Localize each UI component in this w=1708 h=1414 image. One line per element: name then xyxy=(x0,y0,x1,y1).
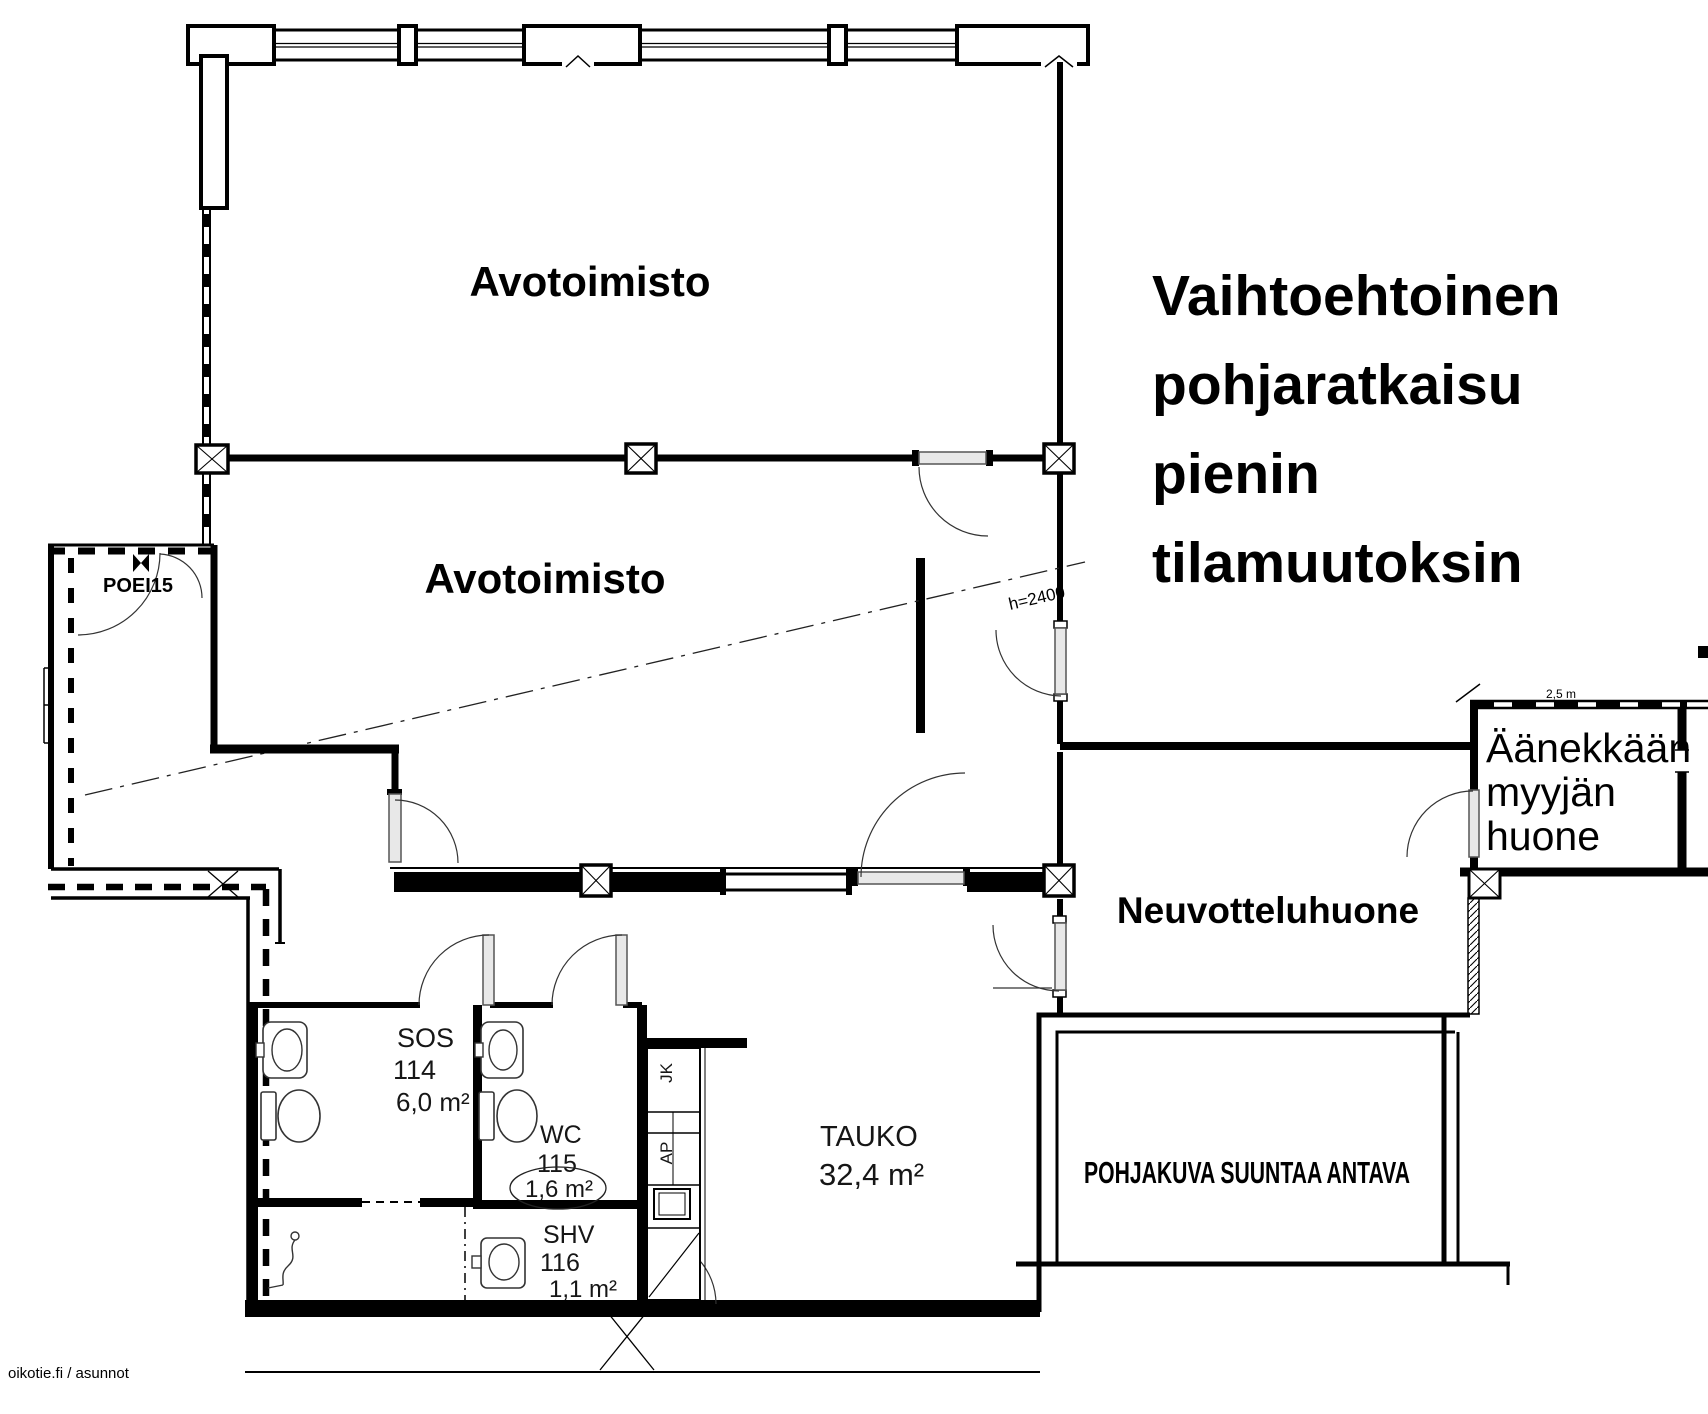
sos-name: SOS xyxy=(397,1023,454,1053)
room-label-open-office-lower: Avotoimisto xyxy=(424,555,665,602)
pillar-xbox xyxy=(1044,865,1074,896)
wc-name: WC xyxy=(540,1121,582,1149)
dimension-annotation: 2,5 m xyxy=(1546,687,1576,701)
pillar-xbox xyxy=(1469,869,1500,898)
pillar-xbox xyxy=(581,865,611,896)
title-line-1: Vaihtoehtoinen xyxy=(1152,264,1561,328)
door-leaf xyxy=(483,935,494,1005)
room-label-break-room: TAUKO 32,4 m² xyxy=(819,1121,924,1192)
pillar-xbox xyxy=(1044,444,1074,473)
kitchenette xyxy=(647,1048,705,1302)
door-leaf xyxy=(616,935,627,1005)
door-leaf xyxy=(1055,628,1066,694)
sos-area: 6,0 m² xyxy=(396,1087,470,1117)
shv-number: 116 xyxy=(540,1249,580,1277)
hatched-wall xyxy=(1468,898,1479,1014)
door-leaf xyxy=(1469,790,1479,857)
room-label-open-office-upper: Avotoimisto xyxy=(469,258,710,305)
disclaimer-text: POHJAKUVA SUUNTAA ANTAVA xyxy=(1084,1155,1410,1190)
pillar-xbox xyxy=(626,444,656,473)
title-line-2: pohjaratkaisu xyxy=(1152,353,1523,417)
wc-area: 1,6 m² xyxy=(525,1176,593,1203)
fire-door-code: POEI15 xyxy=(103,575,173,597)
shv-area: 1,1 m² xyxy=(549,1276,617,1303)
wc-sink-icon xyxy=(475,1022,523,1078)
pillar xyxy=(399,26,416,64)
door-leaf xyxy=(389,794,401,862)
door-leaf xyxy=(858,872,964,884)
sos-toilet-icon xyxy=(261,1090,320,1142)
door-leaf xyxy=(1055,923,1066,990)
title-line-4: tilamuutoksin xyxy=(1152,531,1523,595)
break-room-area: 32,4 m² xyxy=(819,1157,924,1192)
door-leaf xyxy=(919,452,986,464)
pillar xyxy=(829,26,846,64)
kitchen-fridge-label: JK xyxy=(657,1062,676,1083)
wc-toilet-icon xyxy=(479,1090,537,1142)
loud-seller-line-3: huone xyxy=(1486,813,1600,859)
loud-seller-line-1: Äänekkään xyxy=(1486,725,1691,771)
title-line-3: pienin xyxy=(1152,442,1320,506)
sos-number: 114 xyxy=(393,1055,436,1085)
loud-seller-line-2: myyjän xyxy=(1486,769,1616,815)
pillar-leg xyxy=(201,56,227,208)
sos-sink-icon xyxy=(256,1022,307,1078)
shv-name: SHV xyxy=(543,1221,595,1249)
wc-number: 115 xyxy=(537,1150,577,1178)
room-label-meeting-room: Neuvotteluhuone xyxy=(1117,890,1419,931)
floor-plan-svg: Avotoimisto Avotoimisto Vaihtoehtoinen p… xyxy=(0,0,1708,1414)
wall-stub xyxy=(916,558,925,733)
pillar-xbox xyxy=(196,445,228,473)
kitchen-counter-label: AP xyxy=(657,1142,676,1165)
watermark: oikotie.fi / asunnot xyxy=(8,1365,130,1382)
break-room-name: TAUKO xyxy=(820,1121,918,1153)
